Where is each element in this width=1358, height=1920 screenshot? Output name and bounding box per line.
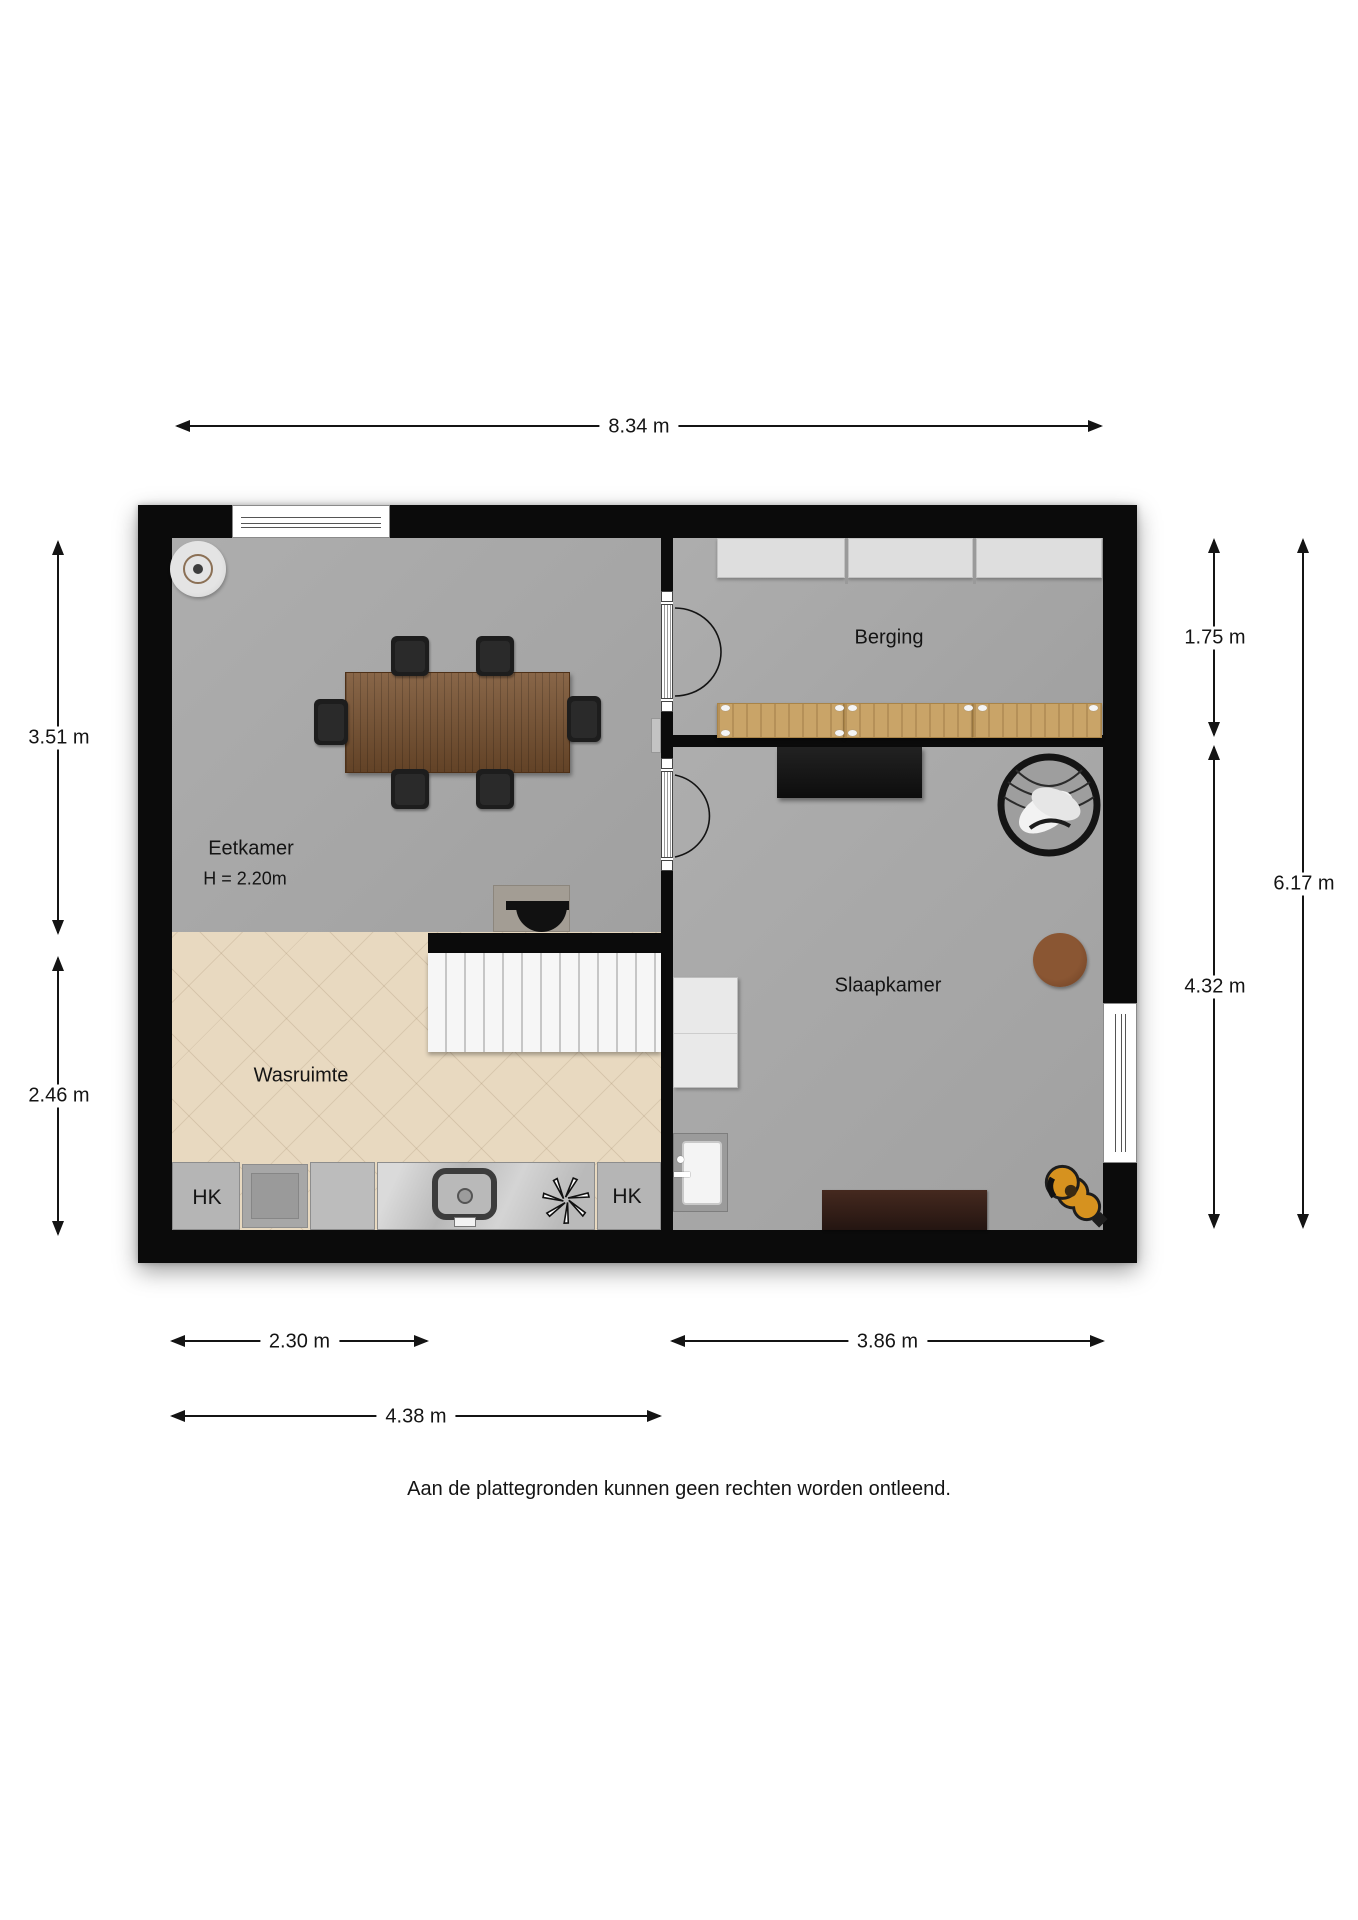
dimension-label-wasruimte-height: 2.46 m (19, 1085, 98, 1108)
faucet-icon (677, 1156, 684, 1163)
shelf-foot (721, 730, 730, 736)
shelf-foot (721, 705, 730, 711)
dimension-eetkamer-height: 3.51 m (57, 542, 59, 933)
chair (476, 769, 514, 809)
door-swing-icon (674, 768, 724, 864)
shelf-post (973, 538, 976, 584)
closet-label-hk-right: HK (612, 1185, 641, 1209)
washbasin (673, 1133, 728, 1212)
room-label-wasruimte: Wasruimte (254, 1065, 349, 1088)
arrowhead-icon (414, 1335, 429, 1347)
floorplan-page: 8.34 m 3.51 m 2.46 m 1.75 m 4.32 m 6.17 … (0, 0, 1358, 1920)
stair-wall (428, 933, 661, 953)
chair (391, 769, 429, 809)
stairs-icon (428, 953, 661, 1052)
arrowhead-icon (52, 540, 64, 555)
bench (822, 1190, 987, 1230)
chair (391, 636, 429, 676)
dimension-berging-height: 1.75 m (1213, 540, 1215, 735)
arrowhead-icon (1208, 538, 1220, 553)
door-swing-icon (674, 600, 726, 704)
washer-door (251, 1173, 299, 1219)
room-height-label-eetkamer: H = 2.20m (203, 869, 287, 890)
window-right (1103, 1003, 1137, 1163)
arrowhead-icon (1208, 722, 1220, 737)
light-center (193, 564, 203, 574)
dimension-label-berging-height: 1.75 m (1175, 626, 1254, 649)
tv-panel (777, 747, 922, 798)
arrowhead-icon (1208, 745, 1220, 760)
shelf-foot (848, 705, 857, 711)
radiator (651, 718, 661, 753)
dimension-label-wasruimte-width: 2.30 m (260, 1331, 339, 1354)
arrowhead-icon (647, 1410, 662, 1422)
shelf-foot (835, 730, 844, 736)
door-leaf-slaapkamer (661, 771, 673, 858)
stove-disc (516, 906, 567, 932)
dimension-label-total-height: 6.17 m (1264, 872, 1343, 895)
round-pouf (1033, 933, 1087, 987)
door-leaf-berging (661, 604, 673, 699)
stove (493, 885, 570, 932)
arrowhead-icon (1088, 420, 1103, 432)
shelf-foot (835, 705, 844, 711)
arrowhead-icon (1297, 1214, 1309, 1229)
door-cap (661, 860, 673, 871)
faucet-icon (454, 1217, 476, 1227)
door-cap (661, 591, 673, 602)
counter-section (310, 1162, 375, 1230)
shelf-post (845, 538, 848, 584)
floorplan: Eetkamer H = 2.20m Berging Slaapkamer Wa… (138, 505, 1137, 1263)
disclaimer-text: Aan de plattegronden kunnen geen rechten… (0, 1478, 1358, 1501)
dimension-slaapkamer-height: 4.32 m (1213, 747, 1215, 1227)
room-label-eetkamer: Eetkamer (208, 838, 294, 861)
arrowhead-icon (52, 1221, 64, 1236)
dimension-eetkamer-width: 4.38 m (172, 1415, 660, 1417)
shelf-foot (1089, 705, 1098, 711)
extractor-fan-icon (542, 1176, 590, 1224)
guitar-icon (1038, 1160, 1113, 1235)
dimension-total-height: 6.17 m (1302, 540, 1304, 1227)
ceiling-light-icon (170, 541, 226, 597)
dimension-wasruimte-width: 2.30 m (172, 1340, 427, 1342)
wood-shelf (973, 703, 1102, 738)
shelf-foot (978, 705, 987, 711)
wardrobe (673, 977, 738, 1088)
dimension-wasruimte-height: 2.46 m (57, 958, 59, 1234)
window-glazing (241, 517, 381, 528)
door-cap (661, 701, 673, 712)
dimension-label-eetkamer-width: 4.38 m (376, 1406, 455, 1429)
room-label-berging: Berging (855, 627, 924, 650)
room-label-slaapkamer: Slaapkamer (835, 975, 942, 998)
dimension-label-eetkamer-height: 3.51 m (19, 726, 98, 749)
arrowhead-icon (170, 1410, 185, 1422)
storage-shelf (717, 538, 845, 578)
arrowhead-icon (175, 420, 190, 432)
window-top (232, 505, 390, 538)
chair (476, 636, 514, 676)
dimension-label-total-width: 8.34 m (599, 416, 678, 439)
door-cap (661, 758, 673, 769)
washing-machine (242, 1164, 308, 1228)
chair (314, 699, 348, 745)
arrowhead-icon (1297, 538, 1309, 553)
wood-shelf (717, 703, 844, 738)
arrowhead-icon (1208, 1214, 1220, 1229)
arrowhead-icon (52, 956, 64, 971)
closet-label-hk-left: HK (192, 1186, 221, 1210)
dimension-label-slaapkamer-height: 4.32 m (1175, 976, 1254, 999)
sink-icon (432, 1168, 497, 1220)
chair (567, 696, 601, 742)
arrowhead-icon (670, 1335, 685, 1347)
faucet-icon (674, 1172, 690, 1177)
dimension-label-slaapkamer-width: 3.86 m (848, 1331, 927, 1354)
dimension-total-width: 8.34 m (177, 425, 1101, 427)
arrowhead-icon (52, 920, 64, 935)
window-glazing (1115, 1014, 1126, 1152)
shelf-foot (964, 705, 973, 711)
shelf-foot (848, 730, 857, 736)
wire-chair-icon (996, 752, 1102, 858)
dining-table (345, 672, 570, 773)
sink-drain (457, 1188, 473, 1204)
wood-shelf (844, 703, 973, 738)
arrowhead-icon (1090, 1335, 1105, 1347)
arrowhead-icon (170, 1335, 185, 1347)
storage-shelf (976, 538, 1102, 578)
dimension-slaapkamer-width: 3.86 m (672, 1340, 1103, 1342)
storage-shelf (848, 538, 973, 578)
